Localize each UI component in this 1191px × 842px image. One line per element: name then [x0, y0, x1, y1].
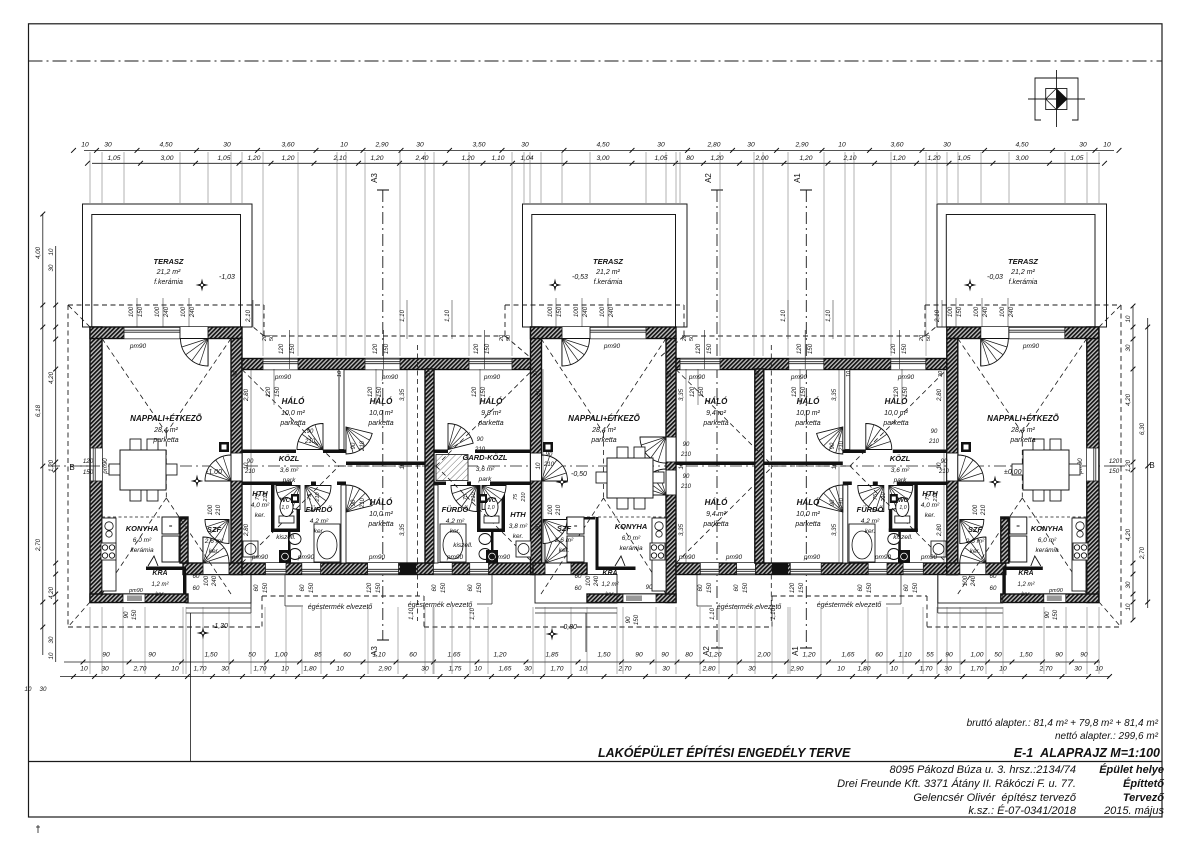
svg-text:150: 150 — [902, 386, 909, 397]
svg-text:150: 150 — [912, 582, 919, 593]
svg-text:3,50: 3,50 — [472, 142, 485, 149]
svg-text:ker.: ker. — [559, 547, 570, 554]
svg-text:100: 100 — [973, 306, 980, 317]
svg-text:21,2 m²: 21,2 m² — [156, 269, 181, 276]
svg-text:60: 60 — [903, 584, 910, 591]
svg-text:6,18: 6,18 — [35, 404, 42, 417]
svg-text:120: 120 — [83, 458, 94, 465]
svg-text:ker.: ker. — [209, 548, 220, 555]
svg-text:150: 150 — [633, 614, 640, 625]
svg-text:=: = — [1016, 524, 1020, 530]
svg-text:4,50: 4,50 — [596, 142, 609, 149]
svg-text:B: B — [1149, 461, 1154, 470]
svg-text:1,20: 1,20 — [461, 155, 474, 162]
svg-text:KRA: KRA — [1018, 570, 1033, 577]
svg-text:1,00: 1,00 — [970, 652, 983, 659]
svg-text:50: 50 — [248, 652, 256, 659]
svg-text:4,20: 4,20 — [1125, 393, 1132, 406]
svg-text:2,80: 2,80 — [701, 666, 715, 673]
svg-text:HÁLÓ: HÁLÓ — [885, 397, 908, 406]
svg-text:100: 100 — [585, 575, 592, 586]
svg-text:30: 30 — [943, 142, 951, 149]
svg-text:1,70: 1,70 — [919, 666, 932, 673]
svg-text:1,80: 1,80 — [857, 666, 870, 673]
svg-text:50: 50 — [269, 334, 275, 341]
svg-text:210: 210 — [263, 491, 269, 502]
svg-text:A1: A1 — [793, 173, 802, 183]
svg-text:150: 150 — [798, 582, 805, 593]
svg-text:pm90: pm90 — [897, 374, 915, 381]
svg-text:pm90: pm90 — [1048, 588, 1064, 594]
svg-text:2,6 m²: 2,6 m² — [965, 538, 985, 545]
svg-text:30: 30 — [416, 142, 424, 149]
svg-text:90: 90 — [351, 442, 357, 449]
svg-text:-1,30: -1,30 — [212, 623, 228, 630]
svg-text:1,10: 1,10 — [444, 309, 451, 322]
svg-text:2,10: 2,10 — [245, 309, 252, 323]
svg-text:240: 240 — [970, 575, 977, 587]
svg-text:2,00: 2,00 — [754, 155, 768, 162]
svg-text:A1: A1 — [791, 646, 800, 656]
svg-text:30: 30 — [944, 666, 952, 673]
svg-text:30: 30 — [755, 370, 761, 377]
svg-text:120: 120 — [265, 386, 272, 397]
svg-text:3,35: 3,35 — [399, 523, 406, 536]
svg-text:park: park — [478, 476, 492, 483]
svg-text:60: 60 — [990, 585, 997, 592]
svg-text:210: 210 — [928, 439, 940, 445]
svg-text:30: 30 — [524, 666, 532, 673]
svg-text:1,0: 1,0 — [487, 505, 494, 511]
svg-text:6,0 m²: 6,0 m² — [1038, 537, 1057, 544]
svg-text:240: 240 — [982, 306, 989, 318]
svg-text:pm90: pm90 — [251, 554, 269, 561]
svg-text:1,04: 1,04 — [520, 155, 533, 162]
svg-text:3,35: 3,35 — [678, 388, 685, 401]
svg-text:10: 10 — [1125, 603, 1132, 610]
svg-text:2,70: 2,70 — [1038, 666, 1052, 673]
svg-text:90: 90 — [661, 652, 669, 659]
svg-text:4,20: 4,20 — [48, 586, 55, 599]
svg-text:ker.: ker. — [970, 548, 981, 555]
svg-text:150: 150 — [476, 582, 483, 593]
svg-text:4,20: 4,20 — [48, 371, 55, 384]
svg-text:90: 90 — [546, 452, 553, 458]
svg-text:=: = — [169, 524, 173, 530]
svg-text:HÁLÓ: HÁLÓ — [370, 397, 393, 406]
svg-text:3,35: 3,35 — [831, 388, 838, 401]
svg-text:150: 150 — [440, 582, 447, 593]
svg-text:120: 120 — [1109, 458, 1120, 465]
svg-text:30: 30 — [104, 142, 112, 149]
svg-text:1,80: 1,80 — [303, 666, 316, 673]
svg-text:pm90: pm90 — [688, 374, 706, 381]
svg-text:10,0 m²: 10,0 m² — [796, 511, 820, 518]
svg-text:150: 150 — [289, 343, 296, 354]
svg-text:150: 150 — [83, 469, 94, 476]
svg-text:90: 90 — [635, 652, 643, 659]
svg-text:3,6 m²: 3,6 m² — [476, 466, 495, 473]
svg-text:3,6 m²: 3,6 m² — [891, 467, 910, 474]
svg-text:ker.: ker. — [255, 512, 266, 519]
svg-text:FÜRDÕ: FÜRDÕ — [857, 505, 884, 514]
svg-text:80: 80 — [685, 652, 693, 659]
svg-text:28,4 m²: 28,4 m² — [591, 427, 616, 434]
svg-text:1,10: 1,10 — [491, 155, 504, 162]
svg-text:1,70: 1,70 — [193, 666, 206, 673]
svg-text:10: 10 — [474, 666, 482, 673]
svg-text:30: 30 — [521, 142, 529, 149]
svg-text:10: 10 — [48, 652, 55, 659]
svg-text:10: 10 — [535, 462, 542, 469]
svg-text:30: 30 — [233, 370, 239, 377]
svg-text:2,80: 2,80 — [535, 388, 542, 402]
svg-text:A2: A2 — [702, 646, 711, 656]
svg-text:100: 100 — [972, 504, 979, 515]
svg-text:KÖZL: KÖZL — [890, 454, 911, 463]
svg-text:2,80: 2,80 — [706, 142, 720, 149]
svg-text:60: 60 — [343, 652, 351, 659]
svg-text:120: 120 — [366, 582, 373, 593]
svg-text:30: 30 — [1125, 581, 1132, 588]
svg-text:-0,50: -0,50 — [571, 471, 587, 478]
svg-text:10: 10 — [243, 462, 250, 469]
svg-text:ker.: ker. — [513, 533, 524, 540]
svg-text:NAPPALI+ÉTKEZÕ: NAPPALI+ÉTKEZÕ — [130, 414, 202, 423]
svg-text:Drei Freunde Kft. 3371 Átány I: Drei Freunde Kft. 3371 Átány II. Rákóczi… — [837, 777, 1076, 790]
svg-text:10: 10 — [1103, 142, 1111, 149]
svg-text:1,05: 1,05 — [1070, 155, 1083, 162]
svg-text:100: 100 — [947, 306, 954, 317]
svg-text:150: 150 — [866, 582, 873, 593]
svg-text:150: 150 — [375, 582, 382, 593]
svg-text:kerámia: kerámia — [130, 547, 154, 554]
svg-text:nettó alapter.: 299,6 m²: nettó alapter.: 299,6 m² — [1055, 731, 1159, 742]
svg-text:2,80: 2,80 — [936, 523, 943, 537]
svg-text:30: 30 — [1079, 142, 1087, 149]
svg-text:240: 240 — [593, 575, 600, 587]
svg-text:20: 20 — [682, 334, 688, 342]
svg-text:égéstermék elvezető: égéstermék elvezető — [817, 602, 882, 609]
svg-text:100: 100 — [203, 575, 210, 586]
svg-text:3,6 m²: 3,6 m² — [280, 467, 299, 474]
svg-text:pm90: pm90 — [274, 374, 292, 381]
svg-text:30: 30 — [667, 370, 673, 377]
svg-text:240: 240 — [163, 306, 170, 318]
svg-text:120: 120 — [695, 343, 702, 354]
svg-text:21,2 m²: 21,2 m² — [595, 269, 620, 276]
svg-text:100: 100 — [154, 306, 161, 317]
svg-text:1,85: 1,85 — [545, 652, 558, 659]
svg-text:3,60: 3,60 — [281, 142, 294, 149]
svg-text:GARD-KÖZL: GARD-KÖZL — [463, 453, 508, 462]
svg-text:30: 30 — [533, 370, 539, 377]
svg-text:30: 30 — [48, 264, 55, 271]
svg-text:75: 75 — [255, 493, 261, 500]
svg-text:pm90: pm90 — [790, 374, 808, 381]
svg-text:3,00: 3,00 — [1015, 155, 1028, 162]
svg-text:k.sz.: É-07-0341/2018: k.sz.: É-07-0341/2018 — [968, 804, 1077, 817]
svg-text:parketta: parketta — [794, 420, 820, 427]
svg-text:10: 10 — [579, 666, 587, 673]
svg-text:A2: A2 — [704, 173, 713, 183]
svg-text:90: 90 — [351, 499, 357, 506]
svg-text:parketta: parketta — [152, 437, 178, 444]
svg-text:60: 60 — [299, 584, 306, 591]
svg-text:égéstermék elvezető: égéstermék elvezető — [308, 604, 373, 611]
svg-text:parketta: parketta — [1009, 437, 1035, 444]
svg-text:SZF: SZF — [557, 524, 572, 533]
svg-text:50: 50 — [994, 652, 1002, 659]
svg-text:90: 90 — [102, 652, 110, 659]
svg-text:90: 90 — [148, 652, 156, 659]
svg-text:4,2 m²: 4,2 m² — [446, 518, 465, 525]
svg-text:kiszell.: kiszell. — [276, 534, 296, 541]
svg-text:150: 150 — [1052, 609, 1059, 620]
svg-text:2,70: 2,70 — [35, 538, 42, 552]
svg-text:120: 120 — [471, 386, 478, 397]
svg-text:10: 10 — [838, 142, 846, 149]
svg-text:120: 120 — [791, 386, 798, 397]
svg-text:210: 210 — [360, 440, 366, 452]
svg-text:1,10: 1,10 — [825, 309, 832, 322]
svg-text:2,40: 2,40 — [414, 155, 428, 162]
svg-text:4,0 m²: 4,0 m² — [251, 502, 270, 509]
svg-text:-0,80: -0,80 — [561, 624, 577, 631]
svg-text:1,20: 1,20 — [892, 155, 905, 162]
svg-text:3,35: 3,35 — [399, 388, 406, 401]
svg-text:KONYHA: KONYHA — [1031, 524, 1064, 533]
svg-text:4,2 m²: 4,2 m² — [861, 518, 880, 525]
svg-text:210: 210 — [555, 504, 562, 516]
svg-text:pm90: pm90 — [678, 554, 696, 561]
svg-text:parketta: parketta — [702, 521, 728, 528]
svg-text:1,10: 1,10 — [709, 607, 716, 620]
svg-text:HTH: HTH — [510, 510, 526, 519]
svg-text:6,30: 6,30 — [1139, 422, 1146, 435]
svg-text:-1,00: -1,00 — [206, 469, 222, 476]
svg-text:10: 10 — [281, 666, 289, 673]
svg-text:1,05: 1,05 — [217, 155, 230, 162]
svg-text:pm90: pm90 — [129, 343, 147, 350]
svg-text:210: 210 — [474, 447, 486, 453]
svg-text:4,50: 4,50 — [1015, 142, 1028, 149]
svg-text:1,0: 1,0 — [281, 505, 288, 511]
svg-text:150: 150 — [742, 582, 749, 593]
svg-text:1,2 m²: 1,2 m² — [1017, 582, 1035, 588]
svg-text:10: 10 — [678, 462, 685, 469]
svg-text:240: 240 — [608, 306, 615, 318]
svg-text:210: 210 — [360, 497, 366, 509]
svg-text:4,0 m²: 4,0 m² — [921, 502, 940, 509]
svg-text:90: 90 — [646, 585, 653, 591]
svg-text:90: 90 — [307, 429, 314, 435]
svg-text:1,20: 1,20 — [802, 652, 815, 659]
svg-text:B: B — [69, 463, 74, 472]
svg-text:2,00: 2,00 — [756, 652, 770, 659]
svg-text:ker.: ker. — [865, 528, 876, 535]
svg-text:100: 100 — [962, 575, 969, 586]
svg-text:park: park — [893, 477, 907, 484]
svg-text:150: 150 — [800, 386, 807, 397]
svg-text:FÜRDÕ: FÜRDÕ — [442, 505, 469, 514]
svg-text:1,65: 1,65 — [841, 652, 854, 659]
svg-text:pm90: pm90 — [297, 554, 315, 561]
svg-text:HÁLÓ: HÁLÓ — [705, 498, 728, 507]
svg-text:150: 150 — [383, 343, 390, 354]
svg-text:ker.: ker. — [155, 592, 165, 598]
svg-text:égéstermék elvezető: égéstermék elvezető — [408, 602, 473, 609]
svg-text:100: 100 — [999, 306, 1006, 317]
svg-text:2,90: 2,90 — [789, 666, 803, 673]
svg-text:10: 10 — [837, 666, 845, 673]
svg-text:75: 75 — [307, 493, 313, 500]
svg-text:Épület helye: Épület helye — [1099, 763, 1164, 776]
svg-text:10: 10 — [171, 666, 179, 673]
svg-text:4,50: 4,50 — [159, 142, 172, 149]
svg-text:10,0 m²: 10,0 m² — [281, 410, 305, 417]
svg-text:150: 150 — [376, 386, 383, 397]
svg-text:90: 90 — [683, 442, 690, 448]
svg-text:pm90: pm90 — [803, 554, 821, 561]
svg-text:1,10: 1,10 — [770, 607, 777, 620]
svg-text:1,2 m²: 1,2 m² — [601, 582, 619, 588]
svg-text:parketta: parketta — [477, 420, 503, 427]
svg-text:LAKÓÉPÜLET ÉPÍTÉSI ENGEDÉLY TE: LAKÓÉPÜLET ÉPÍTÉSI ENGEDÉLY TERVE — [598, 745, 851, 760]
svg-text:10,0 m²: 10,0 m² — [369, 511, 393, 518]
svg-text:210: 210 — [881, 491, 887, 502]
svg-text:3,35: 3,35 — [831, 523, 838, 536]
svg-text:30: 30 — [657, 142, 665, 149]
svg-text:60: 60 — [575, 585, 582, 592]
svg-text:150: 150 — [131, 609, 138, 620]
svg-text:100: 100 — [573, 306, 580, 317]
svg-text:KONYHA: KONYHA — [126, 524, 159, 533]
svg-text:3,35: 3,35 — [678, 523, 685, 536]
svg-text:2,80: 2,80 — [243, 388, 250, 402]
svg-text:30: 30 — [938, 370, 944, 377]
svg-text:10: 10 — [48, 248, 55, 255]
svg-text:1,2 m²: 1,2 m² — [151, 582, 169, 588]
svg-text:10: 10 — [340, 142, 348, 149]
svg-text:Építtető: Építtető — [1123, 777, 1164, 790]
svg-text:TERASZ: TERASZ — [154, 257, 184, 266]
svg-text:parketta: parketta — [367, 420, 393, 427]
svg-text:10: 10 — [1125, 315, 1132, 322]
svg-text:kerámia: kerámia — [619, 545, 643, 552]
svg-text:3,8 m²: 3,8 m² — [509, 523, 528, 530]
svg-text:±0,00: ±0,00 — [1004, 469, 1022, 476]
svg-text:3,00: 3,00 — [160, 155, 173, 162]
svg-text:30: 30 — [101, 666, 109, 673]
svg-text:10: 10 — [831, 462, 838, 469]
svg-text:30: 30 — [662, 666, 670, 673]
svg-text:9,4 m²: 9,4 m² — [706, 410, 727, 417]
svg-text:park: park — [282, 477, 296, 484]
svg-text:100: 100 — [547, 306, 554, 317]
svg-text:4,2 m²: 4,2 m² — [310, 518, 329, 525]
svg-text:150: 150 — [274, 386, 281, 397]
svg-text:KRA: KRA — [152, 570, 167, 577]
svg-text:20: 20 — [499, 334, 505, 342]
svg-text:2,10: 2,10 — [842, 155, 856, 162]
svg-text:30: 30 — [40, 686, 47, 693]
svg-text:KÖZL: KÖZL — [279, 454, 300, 463]
svg-text:90: 90 — [1055, 652, 1063, 659]
svg-text:WC: WC — [898, 497, 909, 504]
svg-text:1,50: 1,50 — [204, 652, 217, 659]
svg-text:kerámia: kerámia — [1035, 547, 1059, 554]
svg-text:30: 30 — [1074, 666, 1082, 673]
svg-text:10,0 m²: 10,0 m² — [796, 410, 820, 417]
svg-text:150: 150 — [901, 343, 908, 354]
svg-text:2,70: 2,70 — [617, 666, 631, 673]
svg-text:150: 150 — [137, 306, 144, 317]
svg-text:2015. május: 2015. május — [1103, 805, 1164, 817]
svg-text:210: 210 — [839, 497, 845, 509]
svg-text:50: 50 — [506, 334, 512, 341]
svg-text:21,2 m²: 21,2 m² — [1010, 269, 1035, 276]
svg-text:1,10: 1,10 — [408, 607, 415, 620]
svg-text:1,20: 1,20 — [1125, 459, 1132, 472]
svg-text:2,6 m²: 2,6 m² — [554, 537, 574, 544]
svg-text:1,65: 1,65 — [447, 652, 460, 659]
svg-text:3,60: 3,60 — [890, 142, 903, 149]
svg-text:120: 120 — [473, 343, 480, 354]
svg-text:10: 10 — [25, 686, 32, 693]
svg-text:2,80: 2,80 — [535, 523, 542, 537]
svg-text:ker.: ker. — [925, 512, 936, 519]
svg-text:pm90: pm90 — [603, 343, 621, 350]
svg-text:1,10: 1,10 — [898, 652, 911, 659]
svg-text:ker.: ker. — [314, 528, 325, 535]
svg-text:100: 100 — [128, 306, 135, 317]
svg-text:parketta: parketta — [279, 420, 305, 427]
svg-text:2,80: 2,80 — [243, 523, 250, 537]
svg-text:2,70: 2,70 — [1139, 546, 1146, 560]
svg-text:bruttó alapter.: 81,4 m² + 79,: bruttó alapter.: 81,4 m² + 79,8 m² + 81,… — [967, 718, 1159, 729]
svg-text:1,20: 1,20 — [927, 155, 940, 162]
svg-text:2,90: 2,90 — [374, 142, 388, 149]
svg-text:10,0 m²: 10,0 m² — [884, 410, 908, 417]
svg-text:150: 150 — [706, 343, 713, 354]
svg-text:75: 75 — [463, 493, 469, 500]
svg-text:120: 120 — [278, 343, 285, 354]
svg-text:Gelencsér Olivér építész terv: Gelencsér Olivér építész tervező — [913, 792, 1077, 804]
svg-text:100: 100 — [599, 306, 606, 317]
svg-text:150: 150 — [706, 582, 713, 593]
svg-text:60: 60 — [467, 584, 474, 591]
svg-text:210: 210 — [980, 504, 987, 516]
svg-text:90: 90 — [931, 429, 938, 435]
svg-text:4,20: 4,20 — [1125, 528, 1132, 541]
svg-text:NAPPALI+ÉTKEZÕ: NAPPALI+ÉTKEZÕ — [987, 414, 1059, 423]
svg-text:60: 60 — [409, 652, 417, 659]
svg-text:f.kerámia: f.kerámia — [1009, 279, 1038, 286]
svg-text:210: 210 — [543, 462, 555, 468]
svg-text:HÁLÓ: HÁLÓ — [370, 498, 393, 507]
svg-text:pm90: pm90 — [102, 458, 109, 475]
svg-text:HÁLÓ: HÁLÓ — [480, 397, 503, 406]
svg-text:240: 240 — [189, 306, 196, 318]
svg-text:30: 30 — [426, 370, 432, 377]
svg-text:90: 90 — [830, 442, 836, 449]
svg-text:pm90: pm90 — [381, 374, 399, 381]
svg-text:90: 90 — [945, 652, 953, 659]
svg-text:2,70: 2,70 — [132, 666, 146, 673]
svg-text:100: 100 — [547, 504, 554, 515]
svg-text:HÁLÓ: HÁLÓ — [282, 397, 305, 406]
